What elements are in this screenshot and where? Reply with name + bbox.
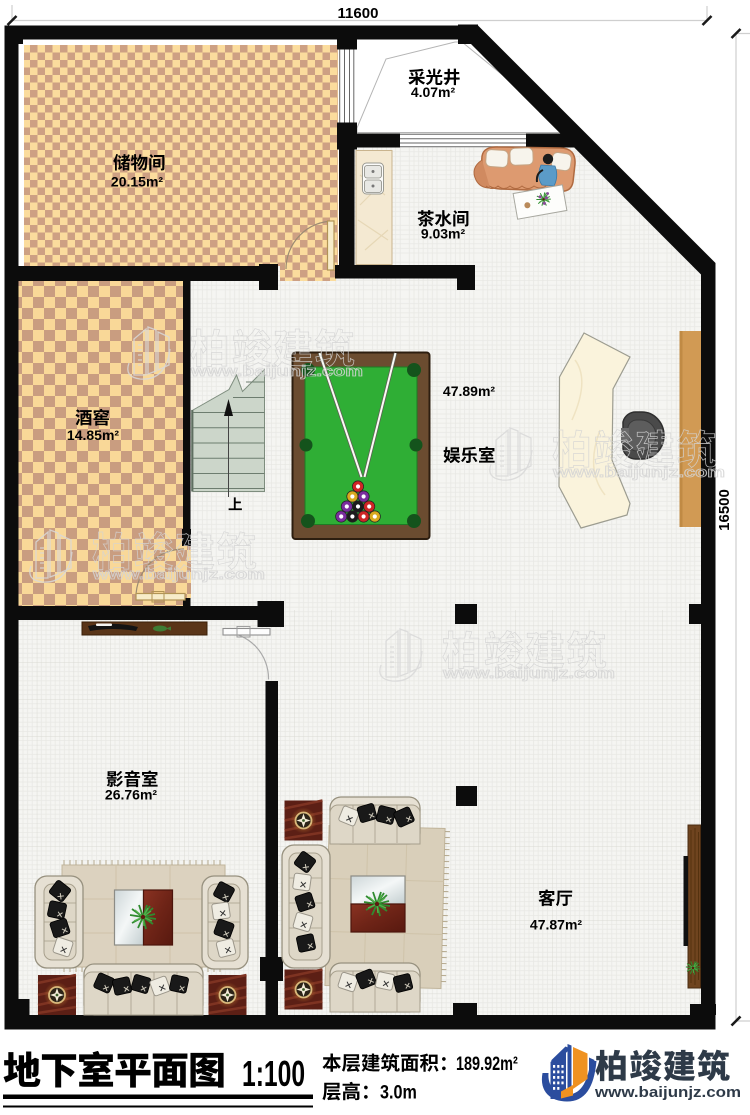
svg-text:16500: 16500 [716, 489, 733, 531]
svg-text:26.76m²: 26.76m² [105, 787, 157, 803]
svg-text:47.87m²: 47.87m² [530, 917, 582, 933]
svg-text:189.92m²: 189.92m² [456, 1053, 518, 1074]
svg-text:4.07m²: 4.07m² [411, 84, 456, 100]
svg-text:20.15m²: 20.15m² [111, 174, 163, 190]
svg-text:1:100: 1:100 [242, 1053, 305, 1094]
svg-text:14.85m²: 14.85m² [67, 427, 119, 443]
svg-text:www.baijunjz.com: www.baijunjz.com [594, 1085, 741, 1101]
svg-text:11600: 11600 [338, 5, 379, 22]
svg-text:9.03m²: 9.03m² [421, 226, 466, 242]
svg-text:3.0m: 3.0m [380, 1081, 417, 1103]
svg-text:47.89m²: 47.89m² [443, 383, 495, 399]
